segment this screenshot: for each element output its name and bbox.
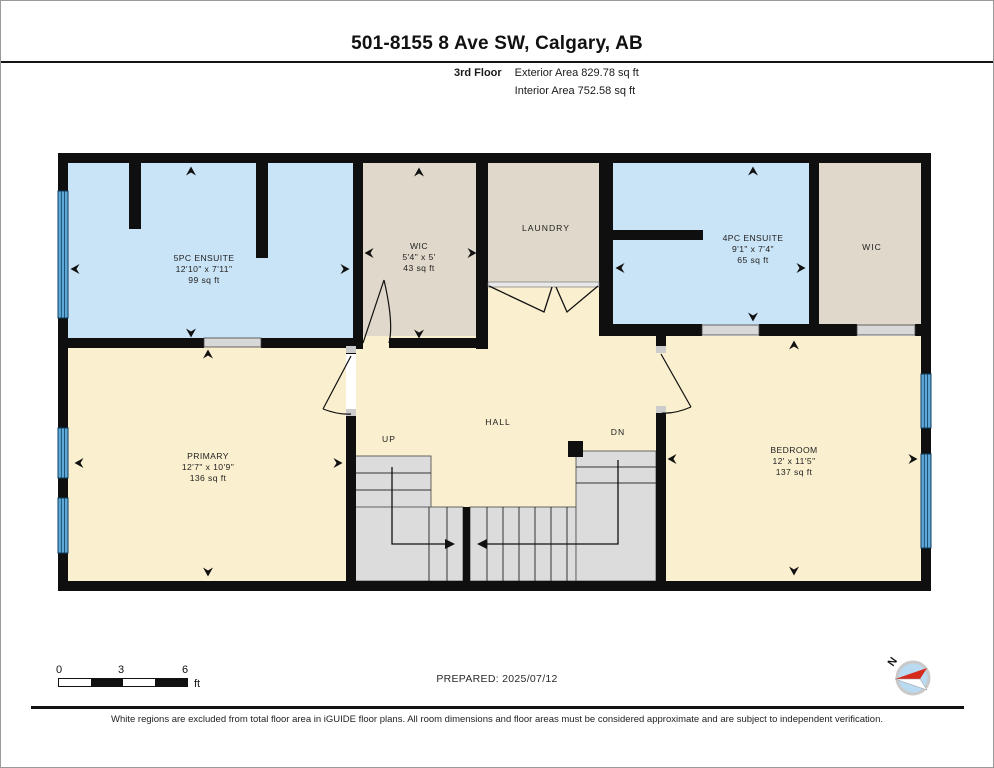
label-laundry: LAUNDRY (522, 223, 570, 233)
wall-laundry-ensuite4 (599, 163, 613, 336)
door-wic-right-bedroom (857, 325, 915, 335)
jamb-bedroom-bottom (656, 406, 666, 413)
stair-divider-wall (463, 507, 470, 581)
wall-stub-ensuite5-a (129, 163, 141, 229)
wall-hall-bedroom-top (656, 324, 666, 346)
label-wic-right: WIC (862, 242, 882, 252)
wall-ensuite4-bottom-b (759, 324, 857, 336)
floor-plan: 5PC ENSUITE 12'10" x 7'11" 99 sq ft WIC … (1, 1, 994, 768)
label-primary-dims: 12'7" x 10'9" (182, 462, 234, 472)
wall-bottom (58, 581, 931, 591)
window-bedroom-right-2 (921, 454, 931, 548)
wall-primary-hall (346, 416, 356, 591)
wall-stub-ensuite5-b (256, 163, 268, 258)
label-ensuite4-name: 4PC ENSUITE (723, 233, 784, 243)
jamb-primary-top (346, 346, 356, 353)
label-ensuite5-dims: 12'10" x 7'11" (176, 264, 233, 274)
prepared-date: PREPARED: 2025/07/12 (1, 673, 993, 685)
label-bedroom-area: 137 sq ft (776, 467, 813, 477)
label-ensuite4-dims: 9'1" x 7'4" (732, 244, 774, 254)
window-primary-left-1 (58, 428, 68, 478)
door-ensuite5-primary (204, 338, 261, 347)
floor-plan-page: 501-8155 8 Ave SW, Calgary, AB 3rd Floor… (0, 0, 994, 768)
label-ensuite4-area: 65 sq ft (737, 255, 769, 265)
stair-down-landing (576, 451, 656, 581)
label-hall: HALL (485, 417, 511, 427)
label-stairs-down: DN (611, 427, 625, 437)
label-bedroom-name: BEDROOM (770, 445, 817, 455)
wall-ensuite5-wic (353, 163, 363, 349)
wall-ensuite5-bottom-a (58, 338, 204, 348)
jamb-primary-bottom (346, 409, 356, 416)
compass-north-label: N (886, 655, 900, 668)
room-4pc-ensuite-floor (613, 163, 809, 326)
wall-wic-laundry (476, 163, 488, 349)
label-stairs-up: UP (382, 434, 396, 444)
wall-top (58, 153, 931, 163)
label-primary-area: 136 sq ft (190, 473, 227, 483)
jamb-bedroom-top (656, 346, 666, 353)
door-laundry-track (488, 282, 599, 287)
wall-stub-ensuite4 (613, 230, 703, 240)
label-ensuite5-name: 5PC ENSUITE (174, 253, 235, 263)
wall-wic-bottom (389, 338, 488, 348)
wall-hall-bedroom (656, 413, 666, 591)
wall-ensuite4-wic (809, 163, 819, 324)
footer-divider (31, 706, 964, 709)
label-ensuite5-area: 99 sq ft (188, 275, 220, 285)
wall-wic-right-bottom (915, 324, 931, 336)
label-primary-name: PRIMARY (187, 451, 229, 461)
compass: N (885, 653, 941, 703)
wall-ensuite4-bottom-a (599, 324, 702, 336)
window-primary-left-2 (58, 498, 68, 553)
label-bedroom-dims: 12' x 11'5" (772, 456, 815, 466)
room-5pc-ensuite-floor (68, 163, 353, 339)
stair-post (568, 441, 583, 457)
window-ensuite5-left (58, 191, 68, 318)
label-wic-left-name: WIC (410, 241, 428, 251)
window-bedroom-right-1 (921, 374, 931, 428)
label-wic-left-area: 43 sq ft (403, 263, 435, 273)
door-ensuite4-bedroom (702, 325, 759, 335)
label-wic-left-dims: 5'4" x 5' (402, 252, 435, 262)
disclaimer-text: White regions are excluded from total fl… (1, 714, 993, 725)
